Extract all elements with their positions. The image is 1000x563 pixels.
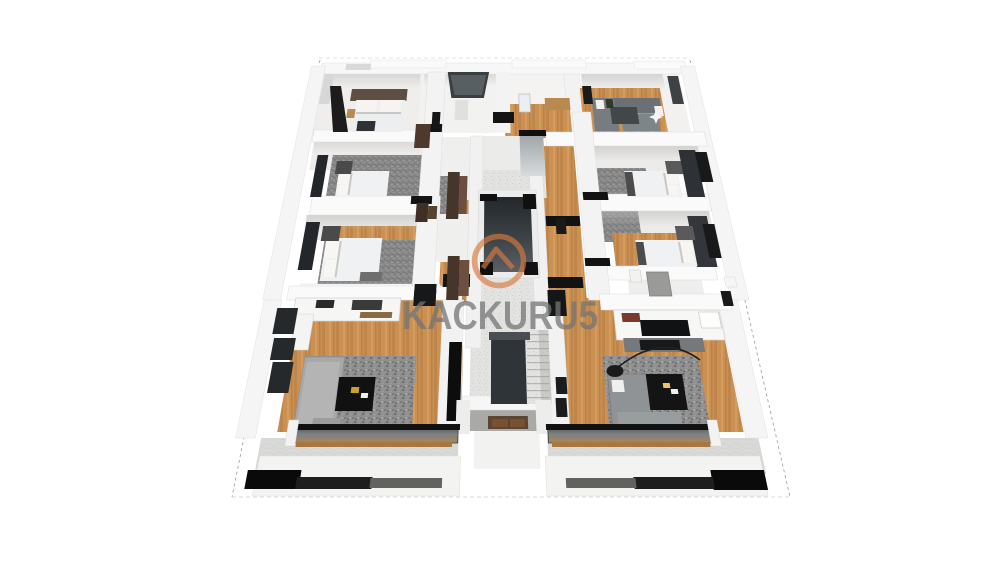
svg-text:KACKURU5: KACKURU5 <box>402 294 598 338</box>
